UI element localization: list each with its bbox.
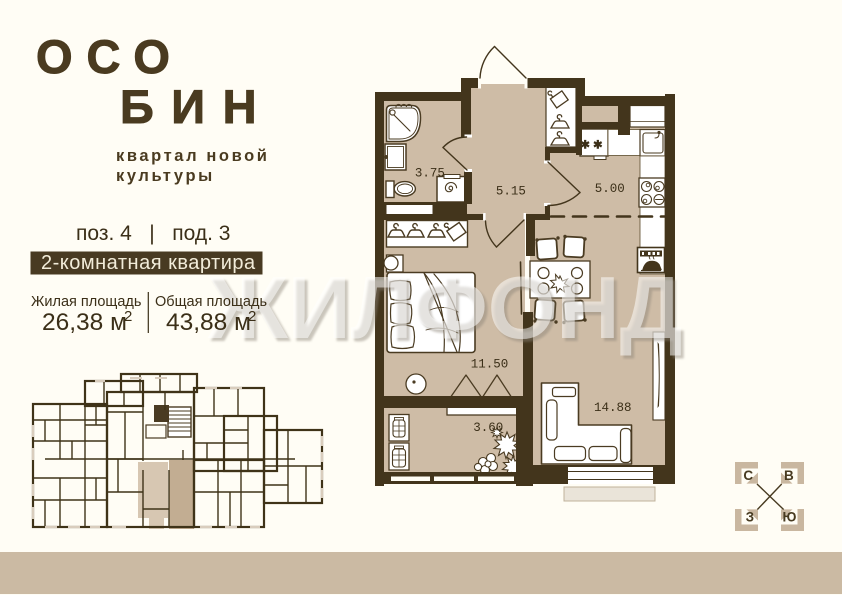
svg-text:БИН: БИН [120,80,274,133]
svg-text:В: В [784,468,794,483]
svg-text:5.00: 5.00 [595,182,625,196]
svg-text:З: З [746,509,754,524]
svg-text:ЖИЛФОНД: ЖИЛФОНД [207,258,682,357]
svg-text:квартал новой: квартал новой [116,147,270,165]
svg-text:5.15: 5.15 [496,185,526,199]
svg-text:✱✱: ✱✱ [580,140,605,152]
svg-text:2: 2 [248,308,256,325]
svg-text:14.88: 14.88 [594,401,632,415]
svg-text:3.75: 3.75 [415,167,445,181]
svg-text:культуры: культуры [116,167,215,185]
svg-text:поз. 4 | под. 3: поз. 4 | под. 3 [76,222,230,245]
svg-text:С: С [743,468,753,483]
svg-text:2-комнатная квартира: 2-комнатная квартира [41,252,256,274]
svg-text:43,88 м: 43,88 м [166,309,251,336]
svg-text:Ю: Ю [783,510,797,525]
svg-text:3.60: 3.60 [473,421,503,435]
svg-text:26,38 м: 26,38 м [42,309,127,336]
svg-text:2: 2 [124,308,132,325]
svg-text:ОСО: ОСО [36,30,184,83]
